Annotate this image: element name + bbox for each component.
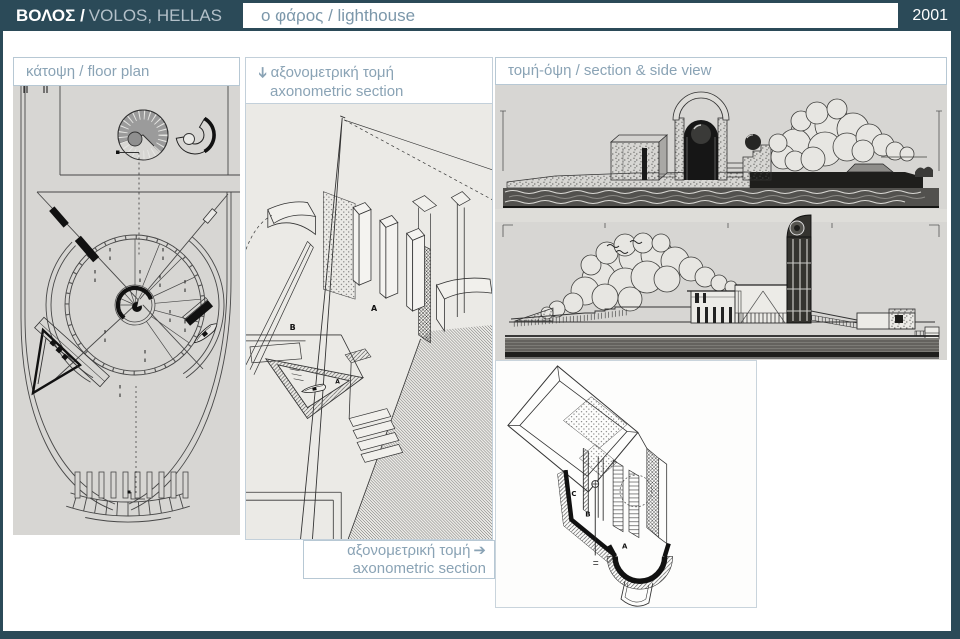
axon-section-drawing: C B A xyxy=(496,361,756,607)
axonometric-label-greek: αξονομετρική τομή xyxy=(271,64,394,81)
page-border-right xyxy=(951,31,960,639)
panel-floor-plan: κάτοψη / floor plan xyxy=(13,57,240,535)
axon-marker-a-small: A xyxy=(335,379,340,386)
axon-section-marker-b: B xyxy=(585,511,590,519)
subtitle-text: ο φάρος / lighthouse xyxy=(261,6,415,25)
panel-axonometric: ➔αξονομετρική τομή axonometric section xyxy=(245,57,493,540)
axonometric-label-line1: ➔αξονομετρική τομή xyxy=(256,63,492,82)
floor-plan-image xyxy=(13,86,240,535)
right-arrow-icon: ➔ xyxy=(473,542,486,559)
panel-section: τομή-όψη / section & side view xyxy=(495,57,947,360)
title-greek: ΒΟΛΟΣ / xyxy=(16,6,85,25)
section-image xyxy=(495,85,947,360)
panel-axon-section: C B A xyxy=(495,360,757,608)
axonometric-label-line2: axonometric section xyxy=(256,82,492,101)
title-latin: VOLOS, HELLAS xyxy=(89,6,222,25)
axon-section-marker-c: C xyxy=(571,490,576,498)
year-label: 2001 xyxy=(912,0,948,31)
floor-plan-drawing xyxy=(13,86,240,535)
section-drawing xyxy=(495,85,947,360)
floor-plan-label: κάτοψη / floor plan xyxy=(13,57,240,86)
axon-marker-b: B xyxy=(290,323,296,332)
axon-section-label-line2: axonometric section xyxy=(304,560,486,578)
page-title: ΒΟΛΟΣ /VOLOS, HELLAS xyxy=(16,0,222,31)
page-border-bottom xyxy=(0,631,960,639)
header: ΒΟΛΟΣ /VOLOS, HELLAS ο φάρος / lighthous… xyxy=(0,0,960,31)
section-label: τομή-όψη / section & side view xyxy=(495,57,947,85)
axon-section-label-box: αξονομετρική τομή➔ axonometric section xyxy=(303,540,495,579)
axon-section-marker-a: A xyxy=(622,542,628,550)
down-arrow-icon: ➔ xyxy=(253,66,272,79)
page-border-left xyxy=(0,31,3,639)
axon-section-label-greek: αξονομετρική τομή xyxy=(347,542,470,559)
axonometric-image: A B A xyxy=(246,103,492,539)
axon-section-label-line1: αξονομετρική τομή➔ xyxy=(304,542,486,560)
axonometric-drawing: A B A xyxy=(246,104,492,539)
page: ΒΟΛΟΣ /VOLOS, HELLAS ο φάρος / lighthous… xyxy=(0,0,960,639)
subtitle-box: ο φάρος / lighthouse xyxy=(243,3,898,28)
axon-marker-a: A xyxy=(371,304,378,313)
axonometric-label: ➔αξονομετρική τομή axonometric section xyxy=(246,58,492,103)
